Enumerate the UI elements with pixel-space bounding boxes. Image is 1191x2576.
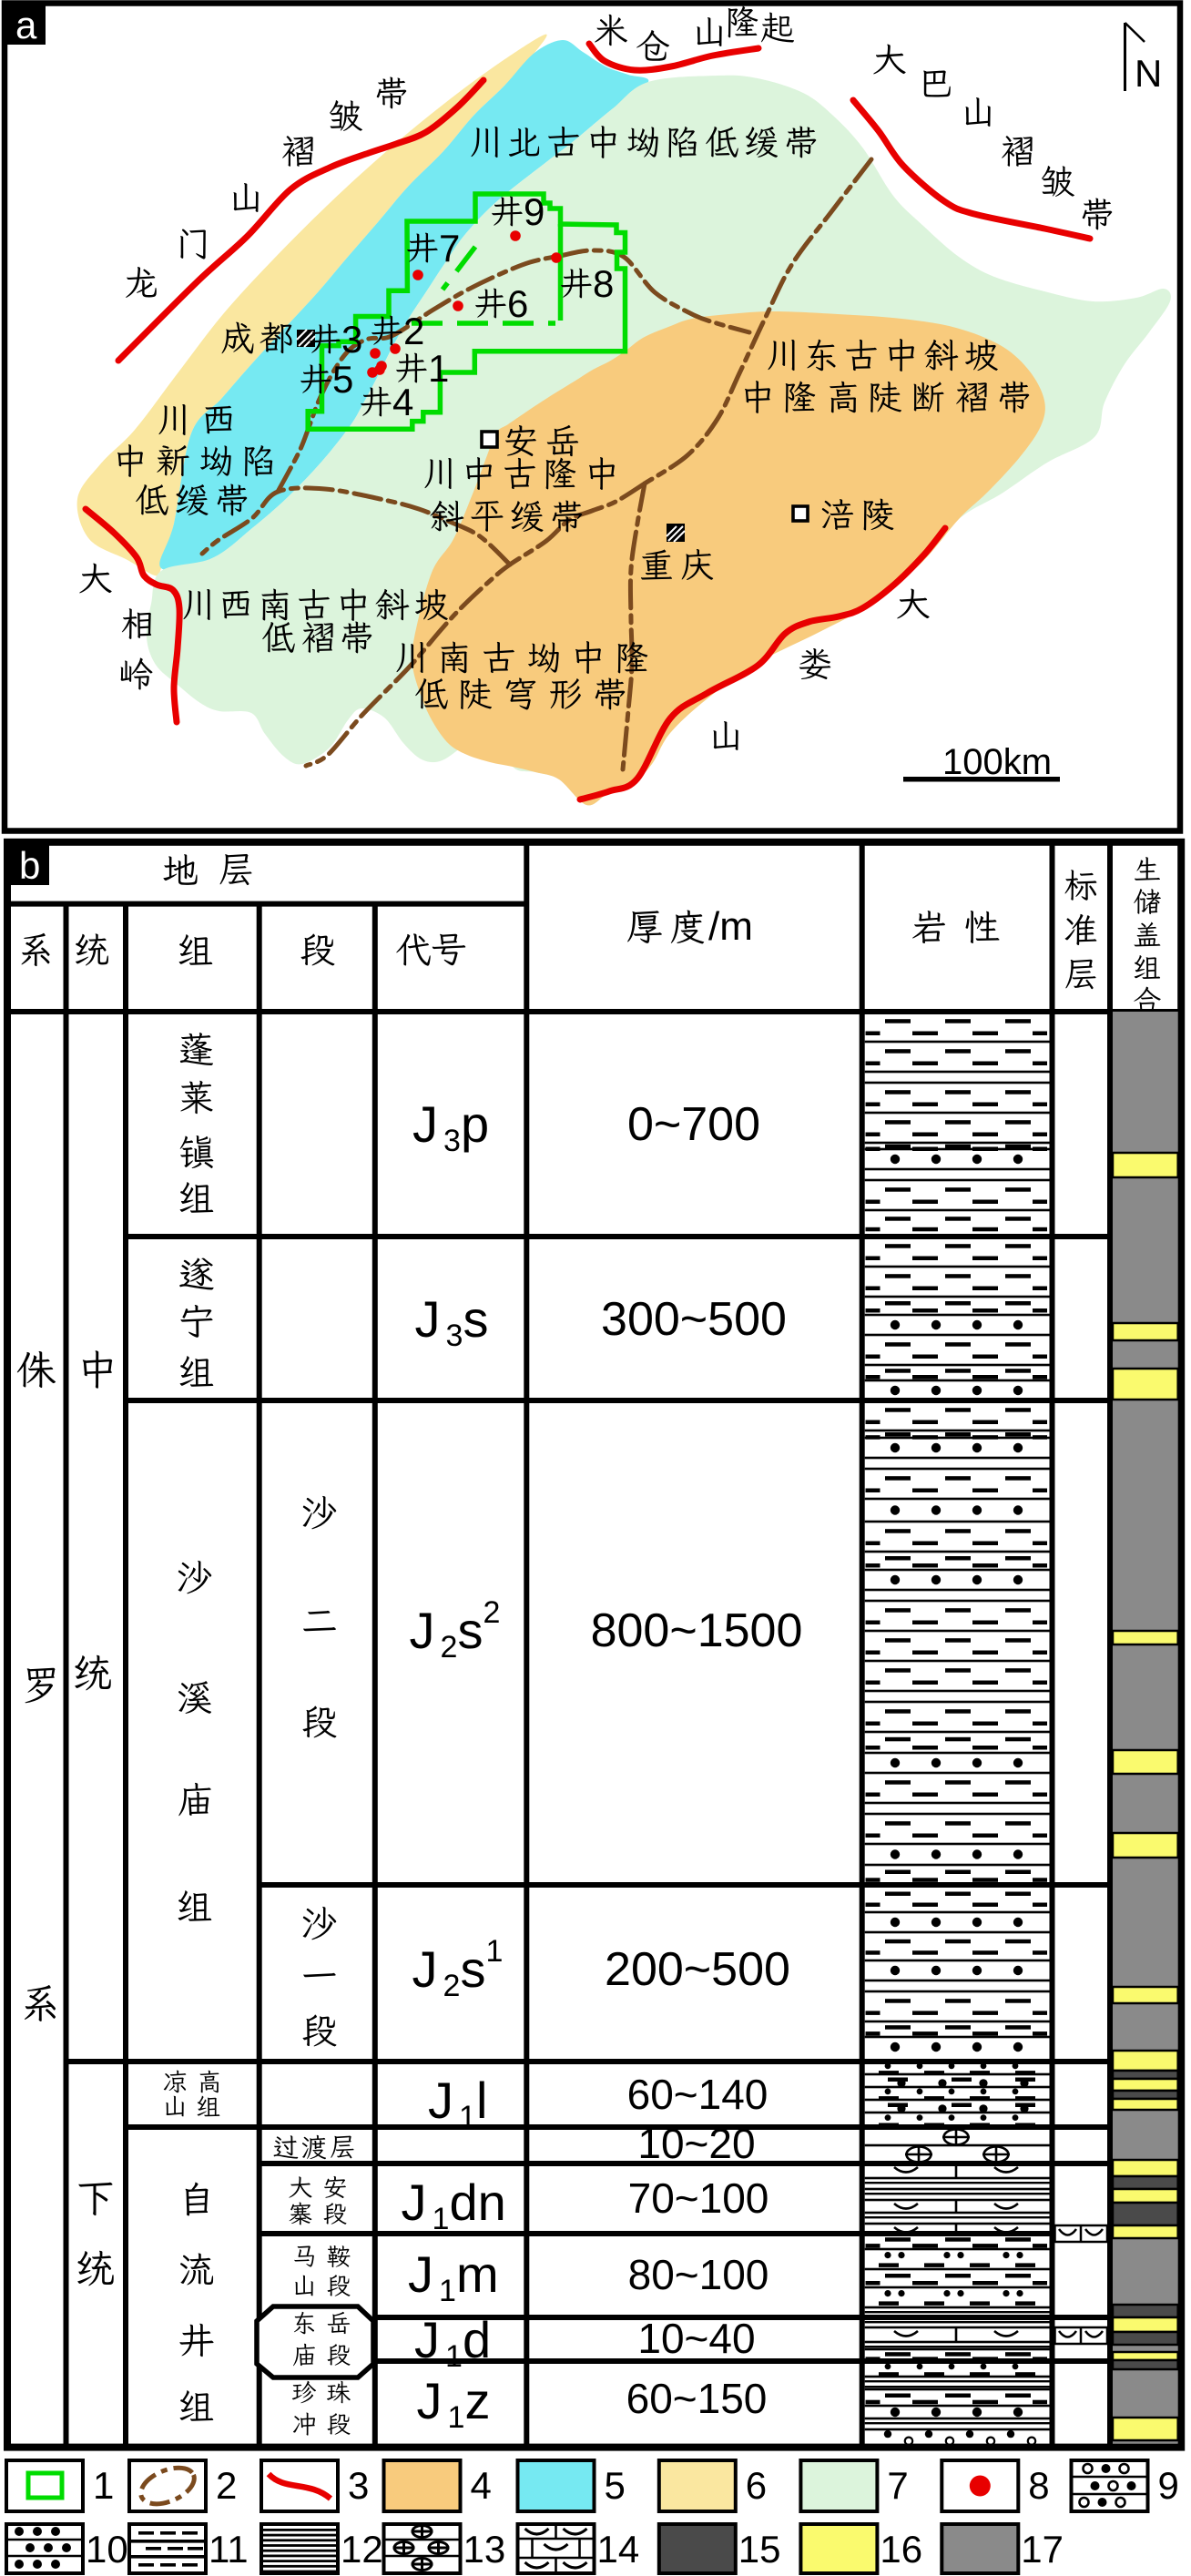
svg-text:5: 5: [605, 2464, 626, 2507]
svg-text:J: J: [414, 2311, 440, 2368]
svg-text:4: 4: [471, 2464, 492, 2507]
svg-text:3: 3: [348, 2464, 369, 2507]
svg-text:s: s: [461, 1940, 486, 1998]
svg-text:J: J: [408, 2245, 433, 2303]
svg-text:300~500: 300~500: [601, 1293, 787, 1346]
svg-text:s: s: [458, 1602, 484, 1659]
svg-text:9: 9: [524, 190, 545, 233]
svg-text:J: J: [412, 1940, 438, 1998]
svg-text:J: J: [415, 1290, 441, 1348]
svg-text:a: a: [15, 4, 37, 46]
svg-text:s: s: [463, 1290, 489, 1348]
svg-text:60~140: 60~140: [627, 2071, 769, 2118]
svg-text:14: 14: [597, 2528, 640, 2571]
svg-text:/m: /m: [708, 904, 753, 949]
svg-text:p: p: [461, 1095, 489, 1153]
svg-text:15: 15: [738, 2528, 781, 2571]
svg-text:1: 1: [486, 1934, 504, 1969]
svg-text:1: 1: [439, 2274, 456, 2308]
svg-text:0~700: 0~700: [627, 1098, 760, 1151]
svg-text:10~40: 10~40: [637, 2315, 755, 2362]
svg-text:1: 1: [433, 2202, 450, 2236]
svg-text:1: 1: [459, 2100, 476, 2134]
svg-text:J: J: [402, 2174, 427, 2231]
svg-text:2: 2: [443, 1969, 461, 2003]
svg-text:12: 12: [341, 2528, 383, 2571]
svg-text:J: J: [410, 1602, 435, 1659]
svg-text:11: 11: [209, 2528, 249, 2571]
svg-text:60~150: 60~150: [626, 2375, 768, 2422]
svg-text:7: 7: [887, 2464, 908, 2507]
svg-text:1: 1: [445, 2339, 463, 2374]
svg-text:2: 2: [484, 1595, 501, 1630]
svg-text:N: N: [1135, 52, 1162, 95]
svg-text:16: 16: [880, 2528, 922, 2571]
svg-text:80~100: 80~100: [628, 2251, 769, 2298]
svg-text:1: 1: [448, 2400, 465, 2435]
svg-text:dn: dn: [450, 2174, 506, 2231]
svg-text:d: d: [463, 2311, 491, 2368]
svg-text:J: J: [428, 2072, 453, 2129]
svg-text:13: 13: [463, 2528, 506, 2571]
svg-text:1: 1: [428, 347, 449, 390]
svg-text:J: J: [412, 1095, 438, 1153]
svg-text:J: J: [417, 2372, 443, 2429]
svg-text:4: 4: [392, 381, 413, 423]
svg-text:10: 10: [86, 2528, 128, 2571]
svg-text:200~500: 200~500: [605, 1943, 790, 1996]
svg-text:l: l: [476, 2072, 487, 2129]
svg-text:b: b: [19, 844, 40, 887]
svg-text:5: 5: [332, 358, 353, 401]
svg-text:100km: 100km: [942, 742, 1052, 782]
svg-text:1: 1: [93, 2464, 114, 2507]
svg-text:10~20: 10~20: [637, 2120, 755, 2167]
svg-text:7: 7: [439, 227, 460, 270]
svg-text:6: 6: [507, 282, 528, 325]
svg-text:3: 3: [341, 318, 362, 361]
svg-text:2: 2: [216, 2464, 237, 2507]
svg-text:m: m: [456, 2245, 499, 2303]
svg-text:800~1500: 800~1500: [591, 1604, 803, 1657]
svg-text:17: 17: [1021, 2528, 1064, 2571]
svg-text:9: 9: [1158, 2464, 1179, 2507]
svg-text:z: z: [465, 2372, 491, 2429]
svg-text:2: 2: [403, 310, 424, 352]
svg-text:2: 2: [441, 1630, 458, 1665]
svg-text:70~100: 70~100: [628, 2174, 769, 2222]
svg-text:6: 6: [746, 2464, 767, 2507]
svg-text:3: 3: [446, 1319, 463, 1353]
svg-text:8: 8: [593, 262, 614, 305]
svg-text:3: 3: [443, 1124, 461, 1158]
svg-text:8: 8: [1028, 2464, 1049, 2507]
